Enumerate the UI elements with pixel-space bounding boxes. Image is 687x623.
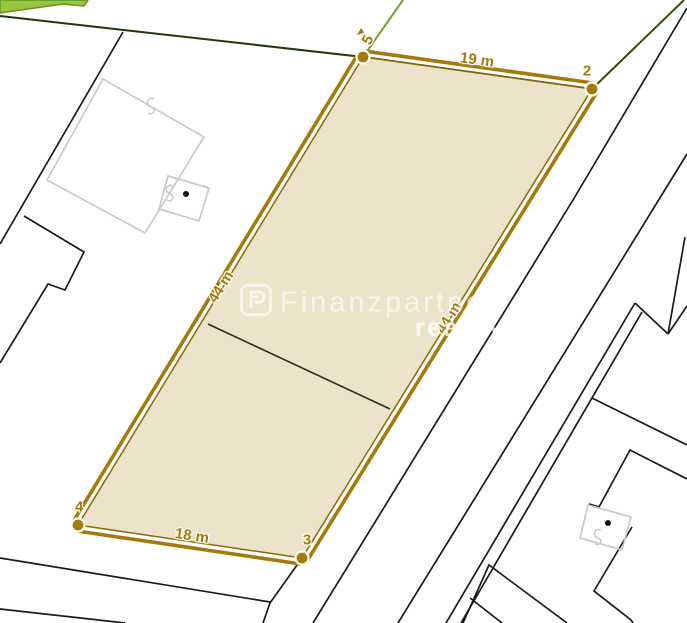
plot-line-diagonal-left: [0, 32, 123, 244]
greenery-polygon-top-left: [0, 0, 88, 13]
corner-point-3[interactable]: [296, 552, 309, 565]
building-point-dot-right: [605, 520, 611, 526]
building-outline-right-bottom: [594, 527, 633, 623]
building-outline-bottom-left: [0, 216, 84, 363]
building-gray-top-left: [47, 79, 204, 233]
building-outline-right-top: [589, 450, 687, 507]
corner-point-4[interactable]: [72, 519, 85, 532]
cadastre-boundary-green-top: [363, 0, 403, 57]
building-annex-right: [580, 505, 631, 550]
cadastre-boundary-green-upper-right: [592, 0, 684, 89]
point-label-2: 2: [583, 63, 591, 80]
cadastral-map-canvas[interactable]: [0, 0, 687, 623]
corner-point-5[interactable]: [357, 51, 370, 64]
plot-line-right-lower: [592, 398, 687, 445]
corner-point-2[interactable]: [586, 83, 599, 96]
point-label-3: 3: [303, 532, 311, 549]
plot-corner-right: [635, 237, 687, 334]
plot-line-bottom-corner: [0, 609, 125, 623]
cadastral-map-view[interactable]: 19 m 44 m 44 m 18 m 5 2 3 4 Finanzpartne…: [0, 0, 687, 623]
fence-line-right-b: [461, 312, 642, 623]
selected-parcel-polygon[interactable]: [78, 57, 592, 558]
fence-line-right-a: [446, 303, 635, 623]
point-label-4: 4: [75, 499, 83, 516]
building-point-dot-left: [183, 191, 189, 197]
